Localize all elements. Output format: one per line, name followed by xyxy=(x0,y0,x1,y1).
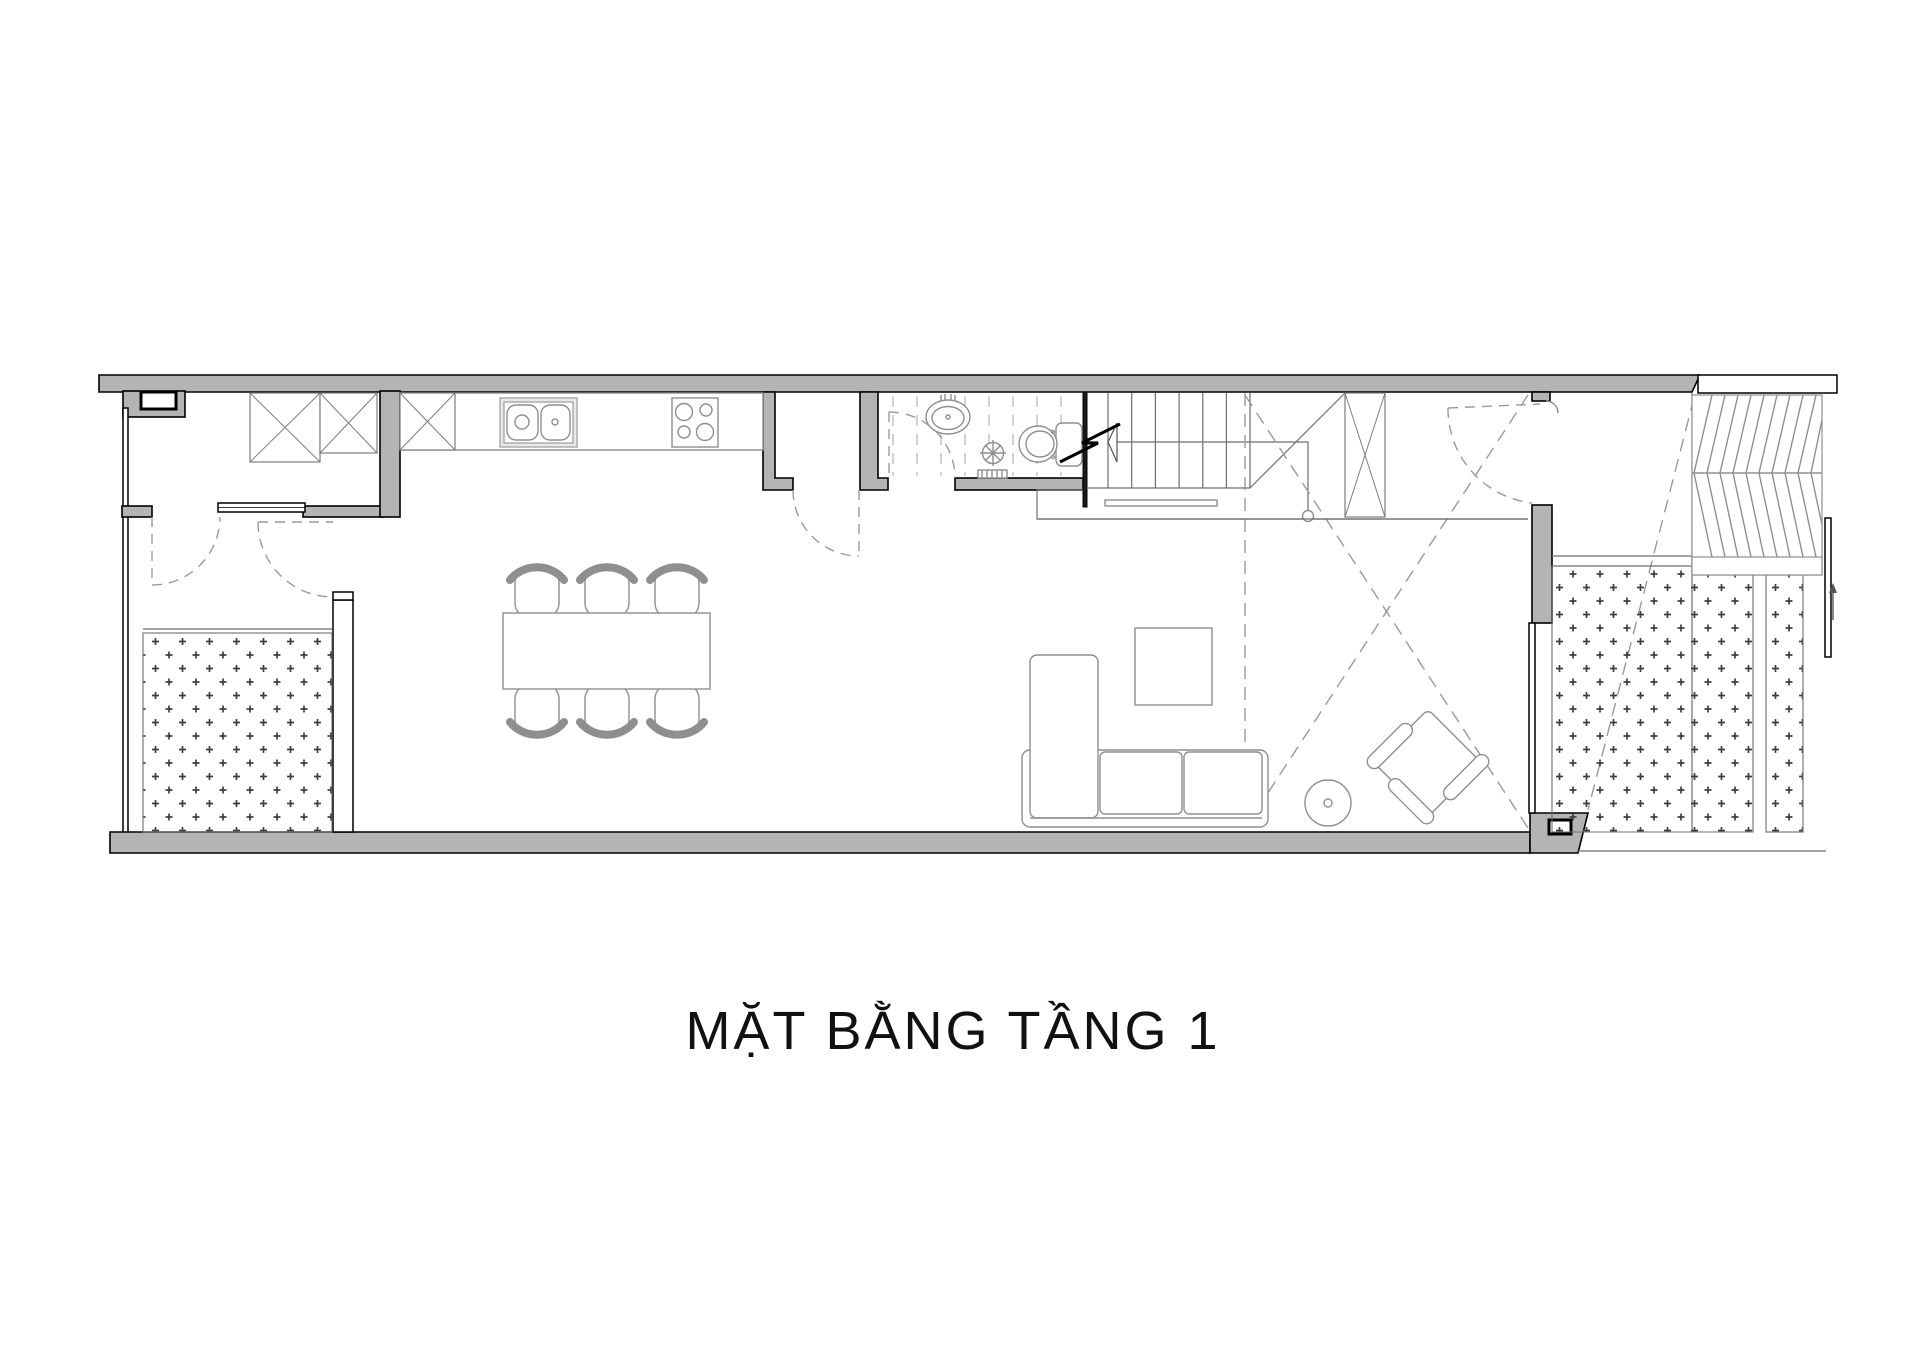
bathroom-left-wall xyxy=(860,392,888,490)
kitchen-stove xyxy=(672,398,718,447)
top-left-niche xyxy=(141,392,176,409)
living-room xyxy=(1022,519,1528,827)
dining-chair xyxy=(650,684,704,735)
utility-window xyxy=(218,503,305,512)
hall-partition-wall xyxy=(333,600,353,832)
utility-kitchen-wall xyxy=(380,391,400,517)
door-hall-1 xyxy=(152,517,220,585)
coffee-table xyxy=(1135,628,1212,705)
bathroom-basin xyxy=(926,394,970,434)
ramp-bottom-strip xyxy=(1692,557,1822,575)
armchair xyxy=(1363,698,1492,827)
door-main-entry xyxy=(1448,401,1558,503)
door-pantry xyxy=(793,490,859,556)
plan-title: MẶT BẰNG TẦNG 1 xyxy=(685,1000,1220,1062)
floor-plan-drawing xyxy=(0,0,1920,1358)
dining-chair xyxy=(510,567,564,618)
kitchen-sink xyxy=(500,398,577,447)
landing-handrail xyxy=(1105,500,1217,506)
dining-chair xyxy=(650,567,704,618)
entry-door-jamb xyxy=(1532,392,1550,401)
stair-diagonal xyxy=(1250,393,1345,488)
hall-partition-jamb xyxy=(333,592,353,600)
dining-table xyxy=(503,613,710,689)
sofa-chaise xyxy=(1030,655,1098,818)
stair-treads xyxy=(1108,393,1250,488)
dining-chair xyxy=(580,684,634,735)
floor-plan-page: MẶT BẰNG TẦNG 1 xyxy=(0,0,1920,1358)
utility-wardrobes xyxy=(250,393,377,462)
pantry-left-wall xyxy=(763,392,793,490)
dining-set xyxy=(503,567,710,735)
utility-bottom-wall-left xyxy=(122,506,152,517)
sofa-cushion xyxy=(1184,752,1262,814)
porch-parapet xyxy=(1698,375,1837,393)
staircase xyxy=(1037,393,1528,522)
sofa-cushion xyxy=(1100,752,1182,814)
porch-paving-a xyxy=(1552,566,1753,832)
porch xyxy=(1552,393,1837,851)
entry-hall-paving xyxy=(143,629,332,832)
utility-bottom-wall-right xyxy=(303,506,383,517)
top-wall xyxy=(99,375,1700,392)
gate-fence xyxy=(1825,518,1831,657)
bathroom-shower-drain xyxy=(978,440,1007,478)
bathroom-toilet xyxy=(1019,423,1082,466)
stair-walkline xyxy=(1108,423,1314,522)
side-table xyxy=(1305,780,1351,826)
dining-chair xyxy=(580,567,634,618)
bathroom-bottom-wall xyxy=(955,478,1083,490)
stair-landing xyxy=(1037,490,1528,519)
door-hall-2 xyxy=(258,522,333,597)
car-ramp xyxy=(1692,395,1822,575)
stair-column-x xyxy=(1345,393,1385,517)
kitchen xyxy=(400,393,763,450)
living-right-glass-wall xyxy=(1529,623,1535,813)
bathroom xyxy=(893,394,1082,478)
dining-chair xyxy=(510,684,564,735)
bottom-wall xyxy=(110,832,1530,853)
porch-paving-b xyxy=(1766,575,1803,832)
left-wall xyxy=(123,408,128,834)
living-right-wall xyxy=(1532,505,1552,623)
